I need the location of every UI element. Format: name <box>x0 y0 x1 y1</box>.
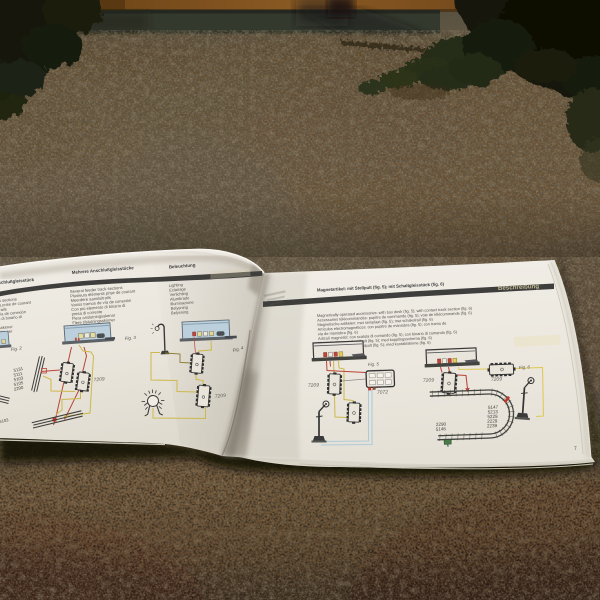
svg-text:7: 7 <box>574 446 577 452</box>
svg-text:2239: 2239 <box>487 423 498 429</box>
svg-text:7209: 7209 <box>423 377 435 384</box>
svg-text:7209: 7209 <box>308 382 320 389</box>
svg-text:7209: 7209 <box>215 393 227 400</box>
svg-text:7209: 7209 <box>491 376 503 383</box>
svg-text:Fig. 6: Fig. 6 <box>519 364 531 370</box>
svg-text:5146: 5146 <box>436 426 447 432</box>
svg-text:7072: 7072 <box>377 389 389 396</box>
svg-text:Fig. 5: Fig. 5 <box>368 361 380 367</box>
svg-text:7209: 7209 <box>93 376 105 383</box>
